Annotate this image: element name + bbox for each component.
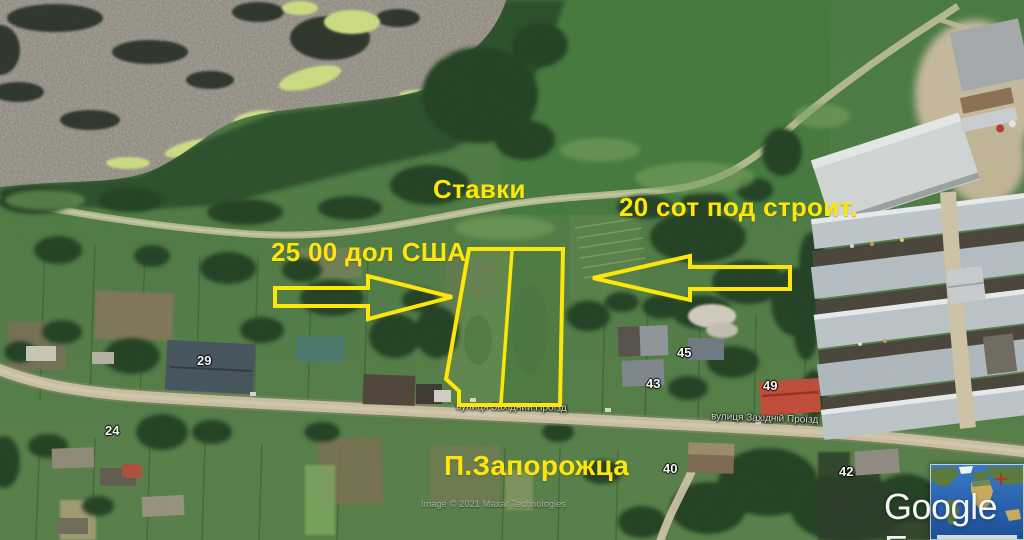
satellite-imagery — [0, 0, 1024, 540]
advertised-plot-field — [447, 249, 563, 404]
satellite-view: 29 24 45 43 49 40 42 вулиця Західний Про… — [0, 0, 1024, 540]
house-number-label: 49 — [763, 378, 777, 393]
price-arrow-right — [275, 276, 452, 319]
street-name-label: вулиця Західний Проїзд — [456, 401, 567, 414]
house-number-label: 40 — [663, 461, 677, 476]
imagery-attribution: Image © 2021 Maxar Technologies — [421, 499, 566, 509]
plot-arrow-left — [593, 256, 790, 300]
house-number-label: 24 — [105, 423, 119, 438]
house-number-label: 42 — [839, 464, 853, 479]
house-number-label: 29 — [197, 353, 211, 368]
house-number-label: 45 — [677, 345, 691, 360]
industrial-buildings — [811, 18, 1024, 439]
plot-divider-line — [501, 251, 512, 403]
trees — [0, 23, 938, 540]
google-earth-logo: Google Ea — [884, 486, 1024, 540]
plot-outline — [446, 249, 563, 405]
ponds-annotation: Ставки — [433, 174, 526, 205]
street-name-label: вулиця Західній Проїзд — [711, 411, 819, 426]
house-number-label: 43 — [646, 376, 660, 391]
price-annotation: 25 00 дол США — [271, 237, 466, 268]
trail-path — [0, 6, 1024, 235]
area-annotation: 20 сот под строит. — [619, 192, 858, 223]
annotation-shapes — [0, 0, 1024, 540]
main-road — [0, 368, 1024, 540]
village-houses — [26, 304, 900, 534]
pond-marsh-area — [0, 0, 520, 200]
street-annotation: П.Запорожца — [444, 450, 629, 482]
